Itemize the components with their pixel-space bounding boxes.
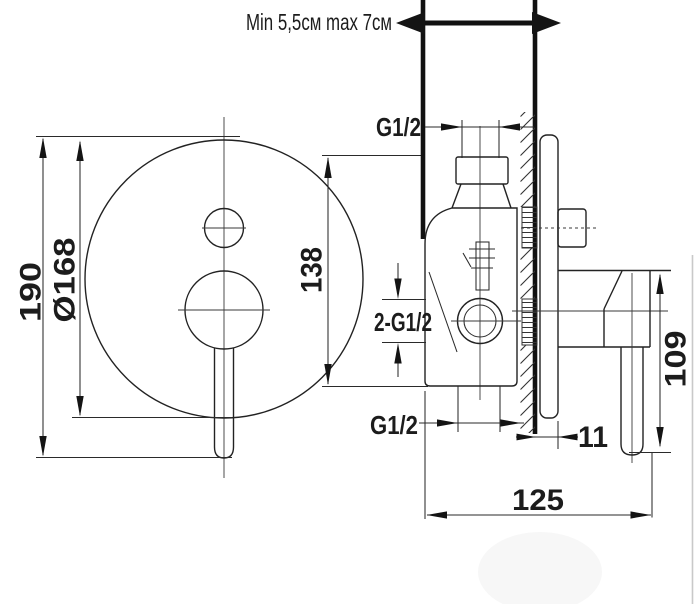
internal-edge bbox=[429, 272, 457, 352]
plate-offset-label: 11 bbox=[578, 421, 608, 454]
arrow-left-icon bbox=[427, 511, 448, 518]
arrow-right-icon bbox=[517, 434, 537, 441]
arrow-down-icon bbox=[656, 427, 663, 448]
arrow-down-icon bbox=[76, 396, 83, 417]
dimension-diameter-168: Ø168 bbox=[49, 141, 233, 418]
dimension-138: 138 bbox=[296, 156, 429, 387]
dimension-top-thread: G1/2 bbox=[376, 112, 534, 142]
dimension-125: 125 bbox=[425, 391, 651, 519]
arrow-up-icon bbox=[39, 138, 46, 159]
technical-drawing-sheet: 190 Ø168 138 bbox=[0, 0, 695, 604]
arrow-right-icon bbox=[631, 511, 652, 518]
wall-hatch bbox=[521, 112, 536, 207]
side-threads-label: 2-G1/2 bbox=[374, 307, 432, 337]
shower-mixer-installation-diagram: 190 Ø168 138 bbox=[0, 0, 695, 604]
bottom-thread-label: G1/2 bbox=[370, 410, 418, 440]
arrow-up-icon bbox=[394, 343, 401, 364]
wall-section bbox=[423, 0, 535, 434]
arrow-down-icon bbox=[39, 436, 46, 457]
front-height-label: 190 bbox=[15, 262, 48, 322]
body-shoulder bbox=[503, 184, 511, 208]
wall-range-label: Min 5,5см max 7см bbox=[246, 9, 392, 35]
watermark-blob bbox=[478, 532, 602, 604]
arrow-left-icon bbox=[499, 123, 520, 130]
arrow-right-icon bbox=[437, 419, 458, 426]
arrow-up-icon bbox=[656, 274, 663, 295]
plate-diameter-label: Ø168 bbox=[49, 238, 82, 323]
housing-outline bbox=[425, 208, 517, 386]
dimension-bottom-thread: G1/2 bbox=[370, 410, 524, 440]
lever-hub-cone bbox=[604, 271, 622, 309]
internal-edge bbox=[463, 253, 471, 267]
handle-length-label: 109 bbox=[660, 331, 693, 388]
dimension-side-threads: 2-G1/2 bbox=[374, 263, 432, 377]
threaded-boss bbox=[522, 207, 537, 248]
arrow-right-icon bbox=[532, 12, 561, 34]
wall-hatch bbox=[521, 345, 536, 433]
dimension-109: 109 bbox=[629, 274, 693, 518]
wall-depth-range: Min 5,5см max 7см bbox=[246, 9, 561, 35]
arrow-right-icon bbox=[441, 123, 462, 130]
valve-body bbox=[425, 120, 537, 432]
total-depth-label: 125 bbox=[512, 484, 564, 517]
trim-plate bbox=[540, 135, 558, 418]
front-view: 190 Ø168 138 bbox=[15, 117, 429, 478]
wall-hatch bbox=[521, 248, 536, 299]
arrow-left-icon bbox=[396, 12, 425, 34]
arrow-up-icon bbox=[324, 157, 331, 178]
arrow-down-icon bbox=[394, 279, 401, 300]
arrow-right-icon bbox=[501, 419, 522, 426]
ports-span-label: 138 bbox=[296, 247, 329, 293]
top-thread-label: G1/2 bbox=[376, 112, 421, 142]
union-nut bbox=[456, 157, 508, 184]
body-shoulder bbox=[452, 184, 461, 208]
arrow-up-icon bbox=[76, 141, 83, 162]
arrow-left-icon bbox=[558, 434, 578, 441]
threaded-boss bbox=[522, 299, 537, 345]
